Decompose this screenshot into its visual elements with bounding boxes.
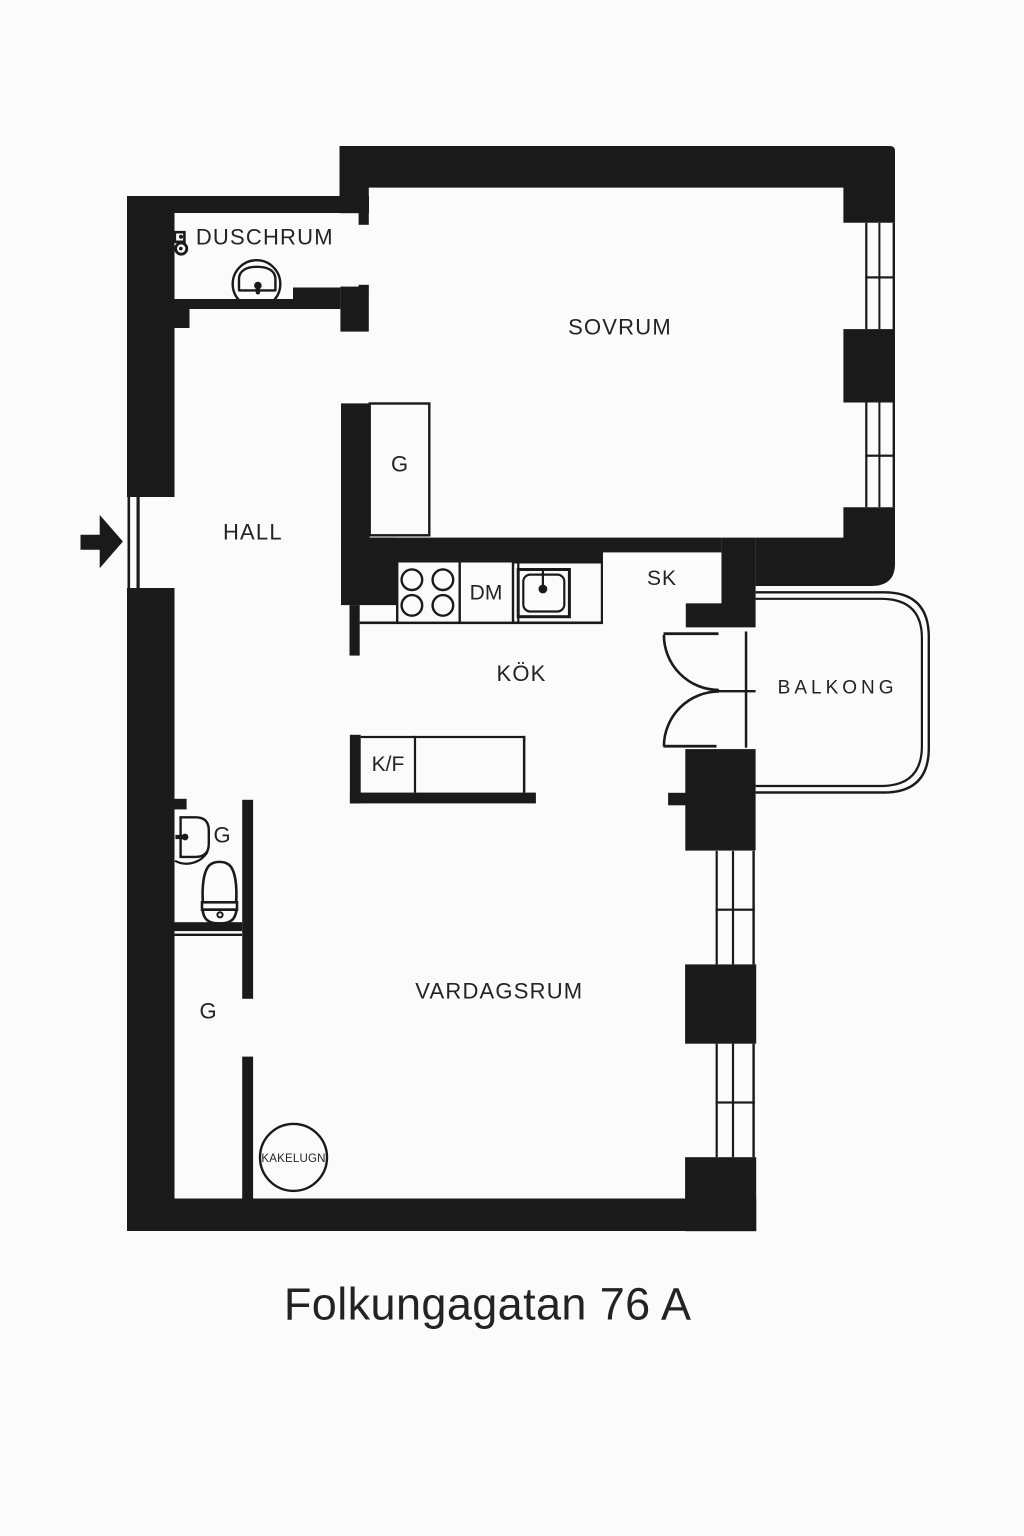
svg-text:G: G [199,999,216,1024]
svg-text:DUSCHRUM: DUSCHRUM [196,225,334,250]
svg-text:G: G [391,452,408,477]
svg-text:VARDAGSRUM: VARDAGSRUM [415,979,583,1004]
svg-text:SK: SK [647,567,677,590]
svg-text:K/F: K/F [372,753,405,776]
svg-text:SOVRUM: SOVRUM [568,315,672,340]
svg-text:HALL: HALL [223,520,283,545]
svg-text:G: G [213,823,230,848]
svg-text:Folkungagatan 76 A: Folkungagatan 76 A [284,1279,692,1330]
svg-text:KÖK: KÖK [496,661,546,686]
svg-text:BALKONG: BALKONG [778,677,898,698]
svg-text:DM: DM [470,582,503,605]
svg-text:KAKELUGN: KAKELUGN [261,1153,325,1165]
